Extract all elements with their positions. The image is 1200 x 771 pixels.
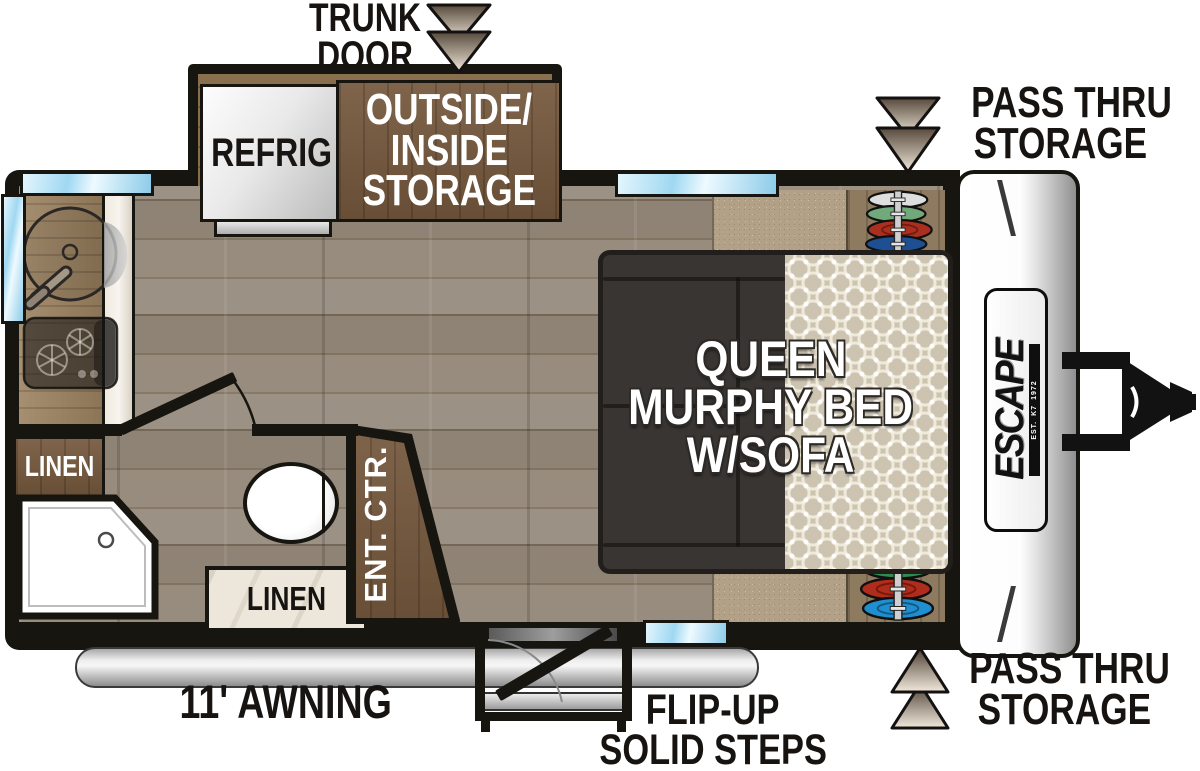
- window-galley: [20, 171, 154, 196]
- floorplan-canvas: ESCAPE EST. K7 1972: [0, 0, 1200, 771]
- refrigerator: REFRIG: [200, 84, 344, 222]
- pass-thru-storage-top-label: PASS THRU STORAGE: [946, 82, 1174, 165]
- murphy-bed-label: QUEEN MURPHY BED W/SOFA: [598, 250, 943, 564]
- logo-k7: K7: [1031, 405, 1038, 416]
- storage-line3: STORAGE: [362, 171, 535, 211]
- outside-inside-storage: OUTSIDE/ INSIDE STORAGE: [336, 80, 562, 222]
- pass-thru-bottom-line1: PASS THRU: [969, 648, 1170, 689]
- bath-wall: [19, 424, 122, 436]
- shower-pan: [15, 492, 159, 622]
- awning-label: 11' AWNING: [128, 680, 444, 724]
- bath-wall: [252, 424, 358, 436]
- refrigerator-label: REFRIG: [212, 131, 333, 176]
- entertainment-center-label: ENT. CTR.: [347, 428, 405, 620]
- linen-cabinet: LINEN: [13, 436, 105, 499]
- escape-logo-text: ESCAPE: [992, 340, 1028, 480]
- pass-thru-top-arrow-icon: [872, 94, 944, 178]
- bed-line1: QUEEN: [695, 335, 846, 383]
- sink-bowl-shadow: [104, 222, 127, 288]
- linen-cabinet-label: LINEN: [24, 451, 94, 484]
- flip-up-steps-label: FLIP-UP SOLID STEPS: [556, 690, 870, 771]
- pass-thru-storage-bottom-label: PASS THRU STORAGE: [944, 648, 1184, 731]
- bed-line3: W/SOFA: [687, 431, 855, 479]
- nightstand-top: [846, 190, 945, 252]
- cooktop-icon: [22, 316, 119, 390]
- trunk-door-label: TRUNK DOOR: [285, 0, 445, 75]
- trunk-door-line2: DOOR: [317, 38, 413, 76]
- refrigerator-door: [214, 219, 332, 237]
- hitch-tongue: [1058, 332, 1198, 472]
- window-entry: [643, 620, 729, 646]
- carpet-strip-top: [712, 190, 848, 252]
- linen-counter-label: LINEN: [247, 580, 326, 618]
- trunk-door-arrow-icon: [424, 2, 494, 76]
- linen-counter: LINEN: [205, 566, 368, 632]
- trunk-door-line1: TRUNK: [309, 0, 421, 38]
- bed-line2: MURPHY BED: [628, 383, 913, 431]
- pass-thru-top-line2: STORAGE: [973, 123, 1146, 164]
- pass-thru-top-line1: PASS THRU: [971, 82, 1172, 123]
- step-rail: [475, 636, 485, 720]
- disc-stack-icon: [856, 190, 940, 252]
- pass-thru-bottom-arrow-icon: [888, 644, 952, 732]
- window-bed: [615, 171, 779, 197]
- window-side: [1, 194, 26, 324]
- escape-logo-badge: ESCAPE EST. K7 1972: [984, 288, 1048, 532]
- toilet: [243, 462, 339, 544]
- storage-line1: OUTSIDE/: [366, 90, 532, 130]
- pass-thru-bottom-line2: STORAGE: [977, 689, 1150, 730]
- logo-est: EST.: [1031, 421, 1038, 440]
- steps-line2: SOLID STEPS: [599, 730, 826, 770]
- logo-year: 1972: [1031, 380, 1038, 400]
- storage-line2: INSIDE: [390, 131, 507, 171]
- steps-line1: FLIP-UP: [646, 690, 780, 730]
- step-foot: [481, 721, 490, 732]
